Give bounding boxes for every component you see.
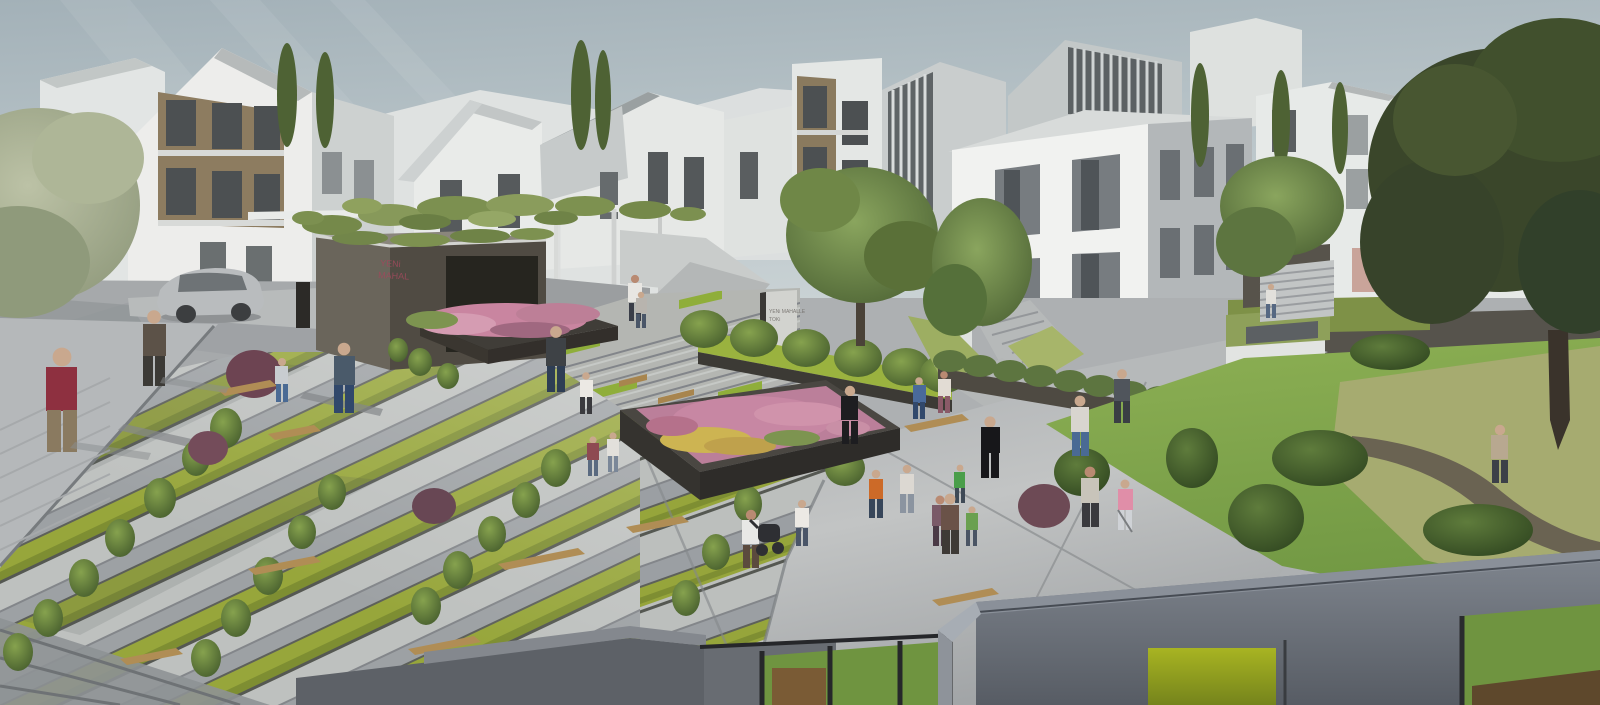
svg-text:YENi MAHALLE: YENi MAHALLE bbox=[769, 309, 806, 315]
svg-text:TOKi: TOKi bbox=[769, 317, 780, 323]
svg-text:MAHAL: MAHAL bbox=[378, 270, 409, 282]
svg-text:YENi: YENi bbox=[380, 258, 401, 269]
